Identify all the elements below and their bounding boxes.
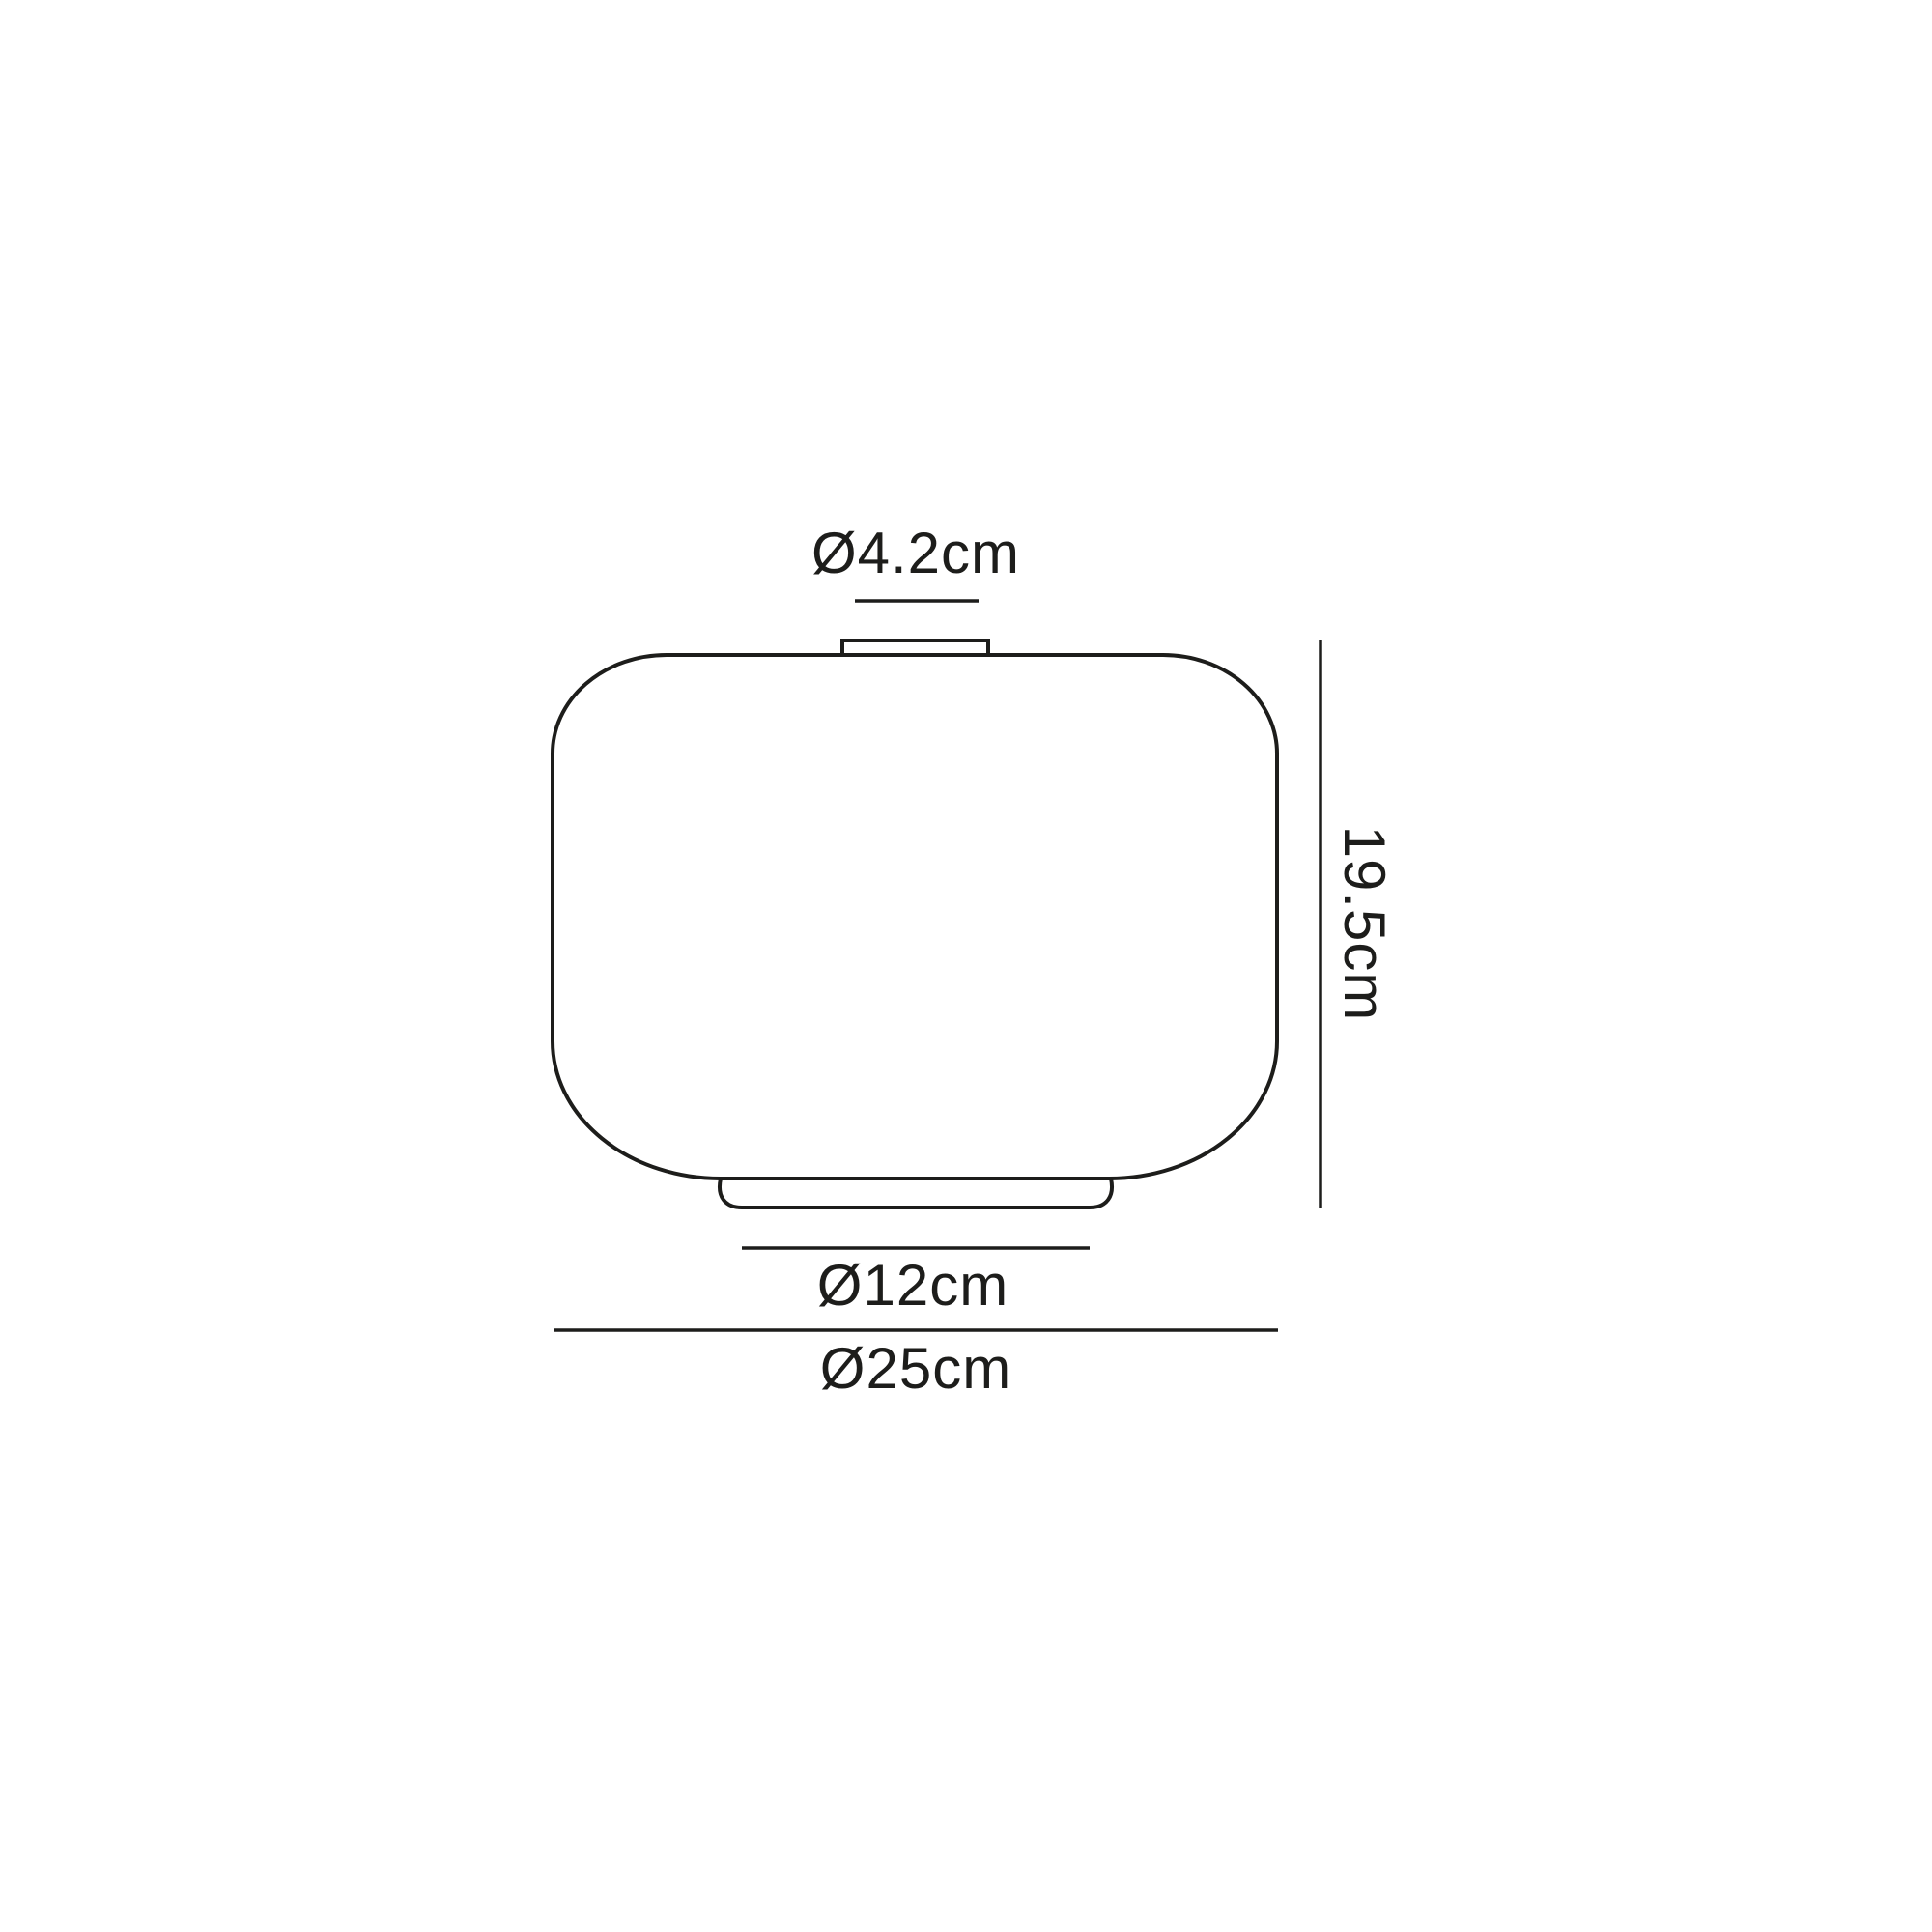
shade-body-outline xyxy=(553,655,1277,1179)
technical-drawing-canvas: Ø4.2cm 19.5cm Ø12cm Ø25cm xyxy=(0,0,1932,1932)
base-diameter-label: Ø12cm xyxy=(720,1256,1106,1316)
base-outline xyxy=(720,1179,1112,1207)
height-label: 19.5cm xyxy=(1334,779,1394,1068)
top-diameter-label: Ø4.2cm xyxy=(723,524,1109,583)
overall-diameter-label: Ø25cm xyxy=(723,1339,1109,1399)
shade-line-drawing xyxy=(0,0,1932,1932)
